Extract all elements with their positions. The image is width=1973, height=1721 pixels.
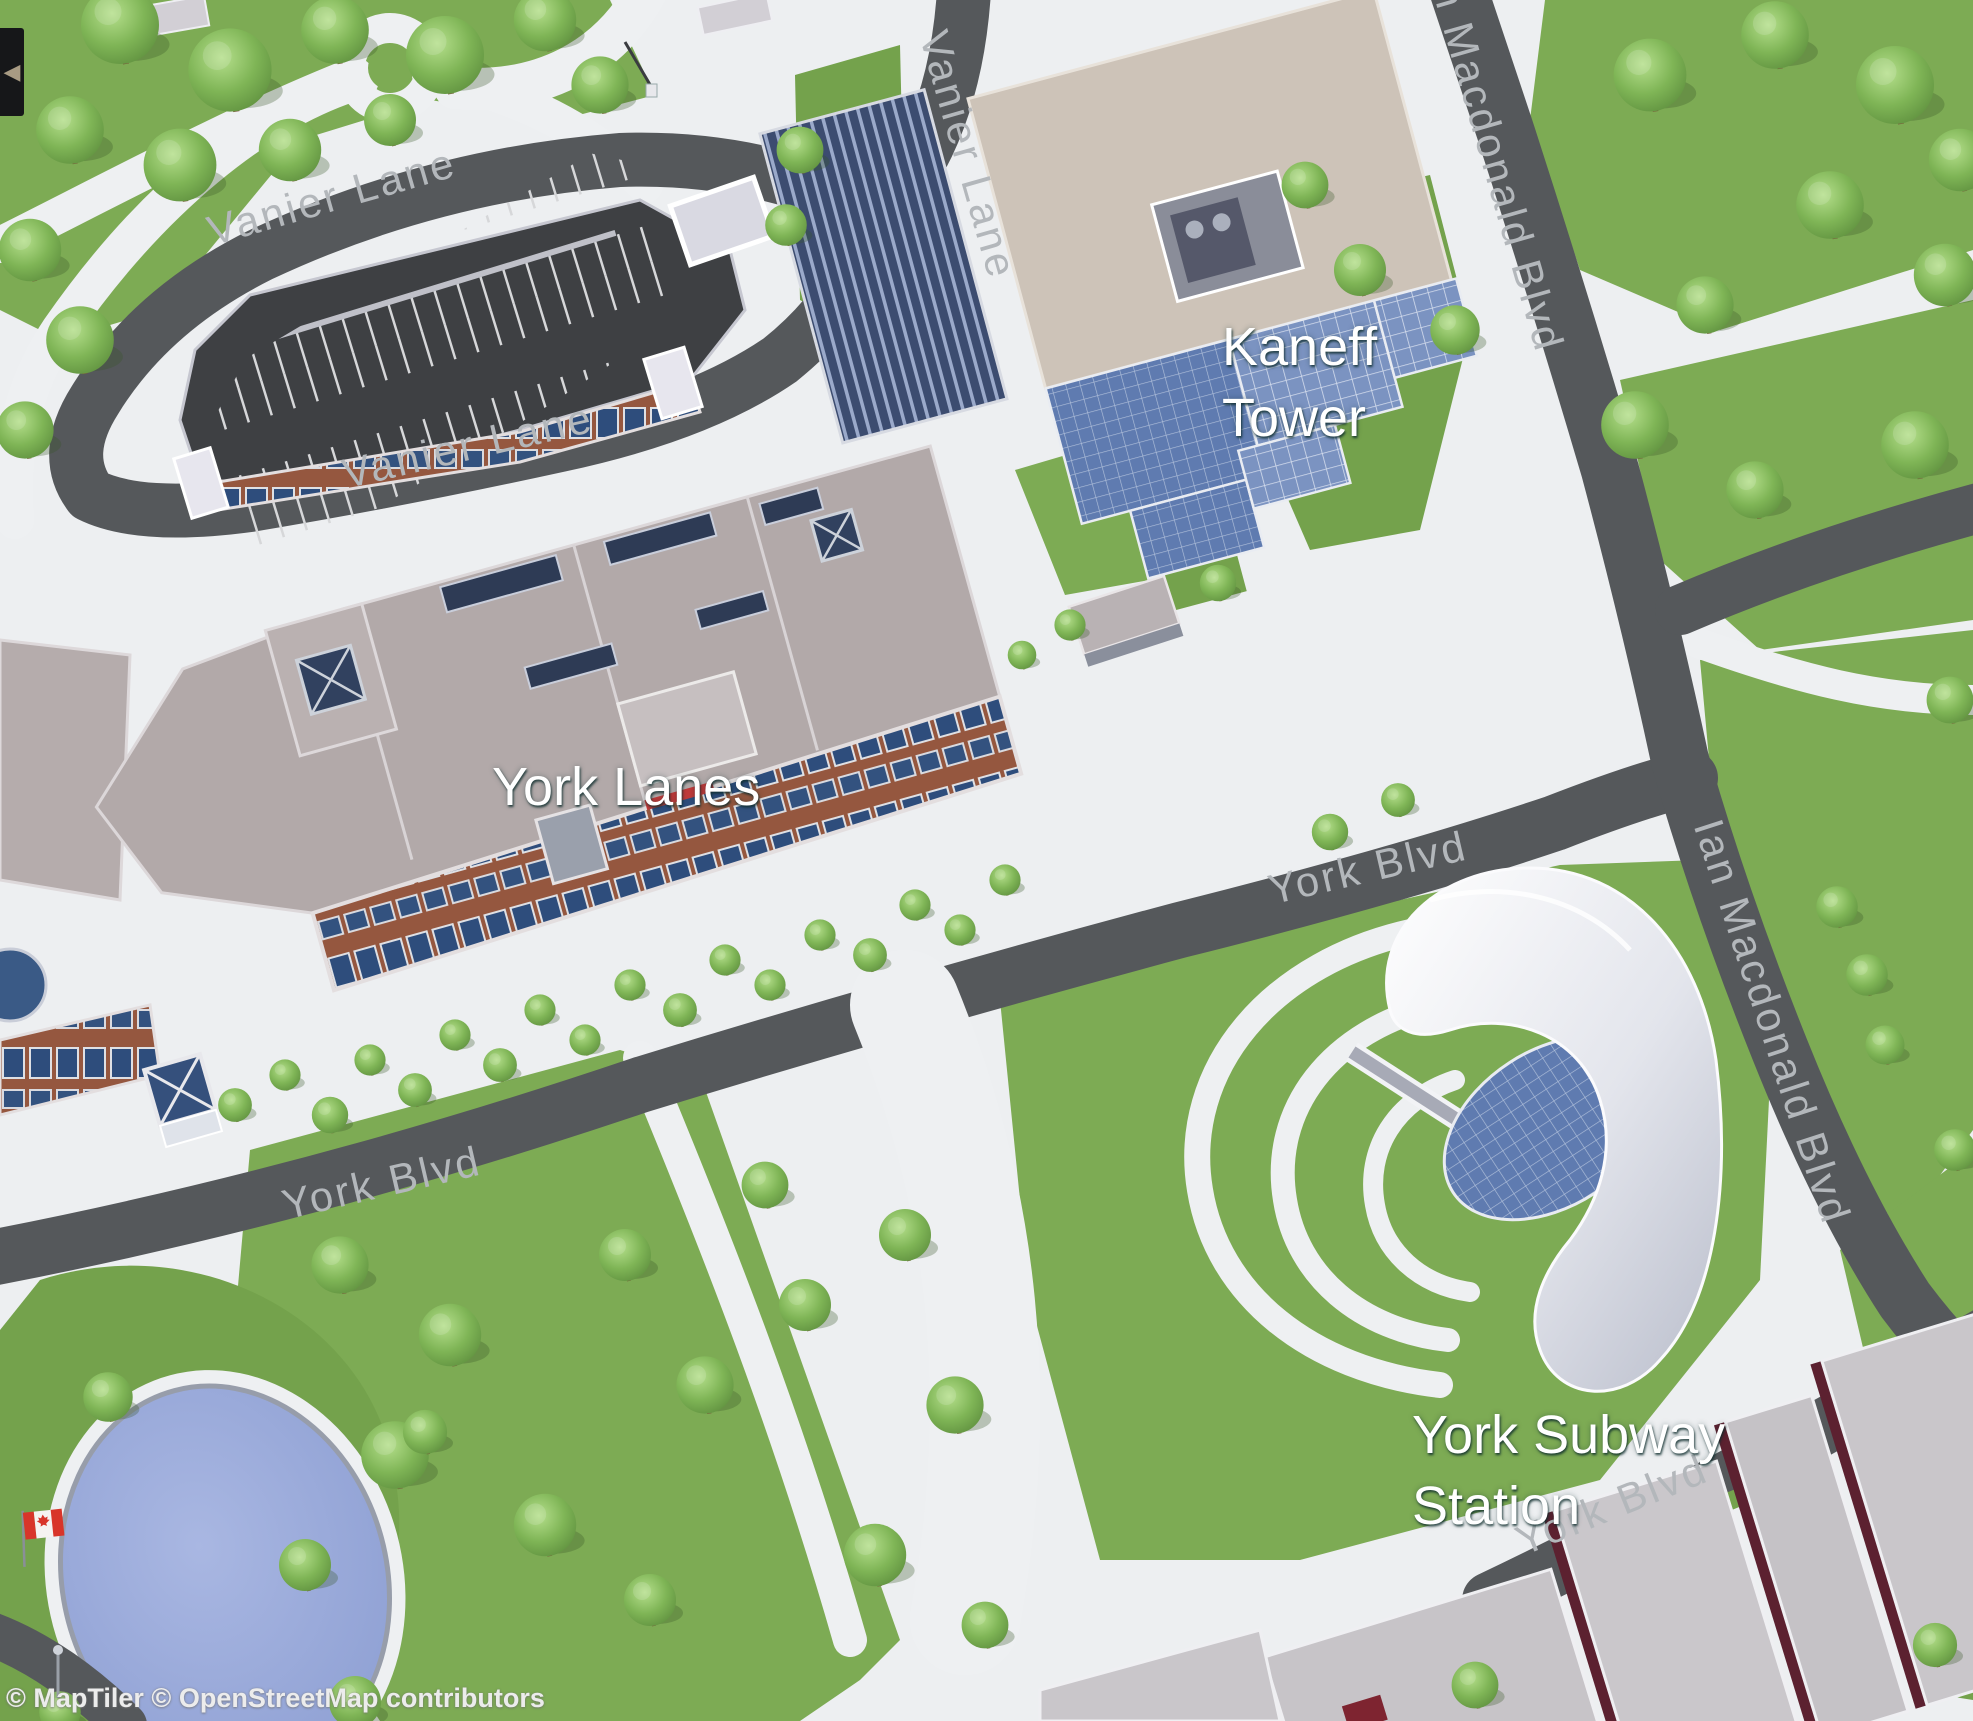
collapse-panel-button[interactable]: ◀ <box>0 28 24 116</box>
map-attribution[interactable]: © MapTiler © OpenStreetMap contributors <box>6 1683 545 1714</box>
chevron-left-icon: ◀ <box>4 59 21 85</box>
map-canvas[interactable] <box>0 0 1973 1721</box>
map-viewport[interactable]: Vanier Lane Vanier Lane Vanier Lane Ian … <box>0 0 1973 1721</box>
